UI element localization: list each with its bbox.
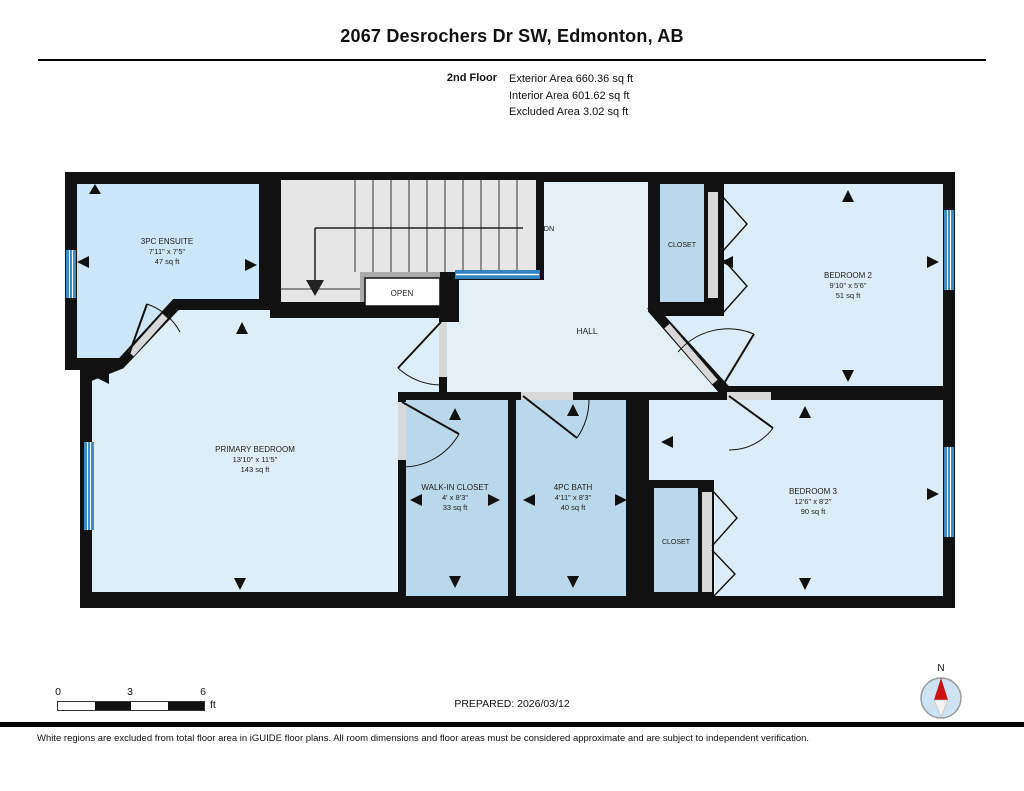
floorplan-drawing: 3PC ENSUITE 7'11" x 7'5" 47 sq ft OPEN D… bbox=[65, 172, 955, 608]
floor-summary: 2nd Floor Exterior Area 660.36 sq ft Int… bbox=[28, 71, 1024, 121]
primary-area: 143 sq ft bbox=[241, 465, 271, 474]
stair-railing bbox=[455, 270, 540, 279]
bedroom3-area: 90 sq ft bbox=[801, 507, 827, 516]
floor-name: 2nd Floor bbox=[447, 71, 497, 121]
primary-label: PRIMARY BEDROOM bbox=[215, 445, 295, 454]
ensuite-dims: 7'11" x 7'5" bbox=[149, 247, 186, 256]
bedroom3-dims: 12'6" x 8'2" bbox=[795, 497, 832, 506]
window-primary bbox=[84, 442, 94, 530]
closet-top-label: CLOSET bbox=[668, 242, 697, 249]
scale-tick-0: 0 bbox=[51, 686, 65, 698]
window-bedroom3 bbox=[944, 447, 954, 537]
bedroom3-label: BEDROOM 3 bbox=[789, 487, 838, 496]
scale-tick-6: 6 bbox=[196, 686, 210, 698]
primary-dims: 13'10" x 11'5" bbox=[233, 455, 278, 464]
excluded-area: Excluded Area 3.02 sq ft bbox=[509, 104, 633, 121]
scale-tick-3: 3 bbox=[123, 686, 137, 698]
walkin-area: 33 sq ft bbox=[443, 503, 469, 512]
ensuite-area: 47 sq ft bbox=[155, 257, 181, 266]
bedroom2-label: BEDROOM 2 bbox=[824, 271, 873, 280]
compass-icon: N bbox=[913, 660, 969, 724]
walkin-label: WALK-IN CLOSET bbox=[421, 483, 488, 492]
disclaimer-text: White regions are excluded from total fl… bbox=[37, 733, 987, 744]
bath-dims: 4'11" x 8'3" bbox=[555, 493, 592, 502]
title-divider bbox=[38, 59, 986, 61]
walkin-dims: 4' x 8'3" bbox=[442, 493, 468, 502]
floorplan-page: 2067 Desrochers Dr SW, Edmonton, AB 2nd … bbox=[0, 0, 1024, 791]
bedroom2-dims: 9'10" x 5'6" bbox=[830, 281, 867, 290]
exterior-area: Exterior Area 660.36 sq ft bbox=[509, 71, 633, 88]
bedroom2-area: 51 sq ft bbox=[836, 291, 862, 300]
bath-area: 40 sq ft bbox=[561, 503, 587, 512]
floor-areas: Exterior Area 660.36 sq ft Interior Area… bbox=[509, 71, 633, 121]
closet-bottom-label: CLOSET bbox=[662, 539, 691, 546]
footer-divider bbox=[0, 722, 1024, 727]
ensuite-label: 3PC ENSUITE bbox=[141, 237, 193, 246]
window-bedroom2 bbox=[944, 210, 954, 290]
bath-label: 4PC BATH bbox=[554, 483, 593, 492]
compass-north-label: N bbox=[937, 663, 944, 674]
open-label: OPEN bbox=[391, 289, 414, 298]
hall-label: HALL bbox=[576, 326, 598, 336]
window-ensuite bbox=[66, 250, 76, 298]
dn-label: DN bbox=[544, 224, 555, 233]
interior-area: Interior Area 601.62 sq ft bbox=[509, 88, 633, 105]
prepared-date: PREPARED: 2026/03/12 bbox=[0, 698, 1024, 710]
page-title: 2067 Desrochers Dr SW, Edmonton, AB bbox=[0, 26, 1024, 47]
